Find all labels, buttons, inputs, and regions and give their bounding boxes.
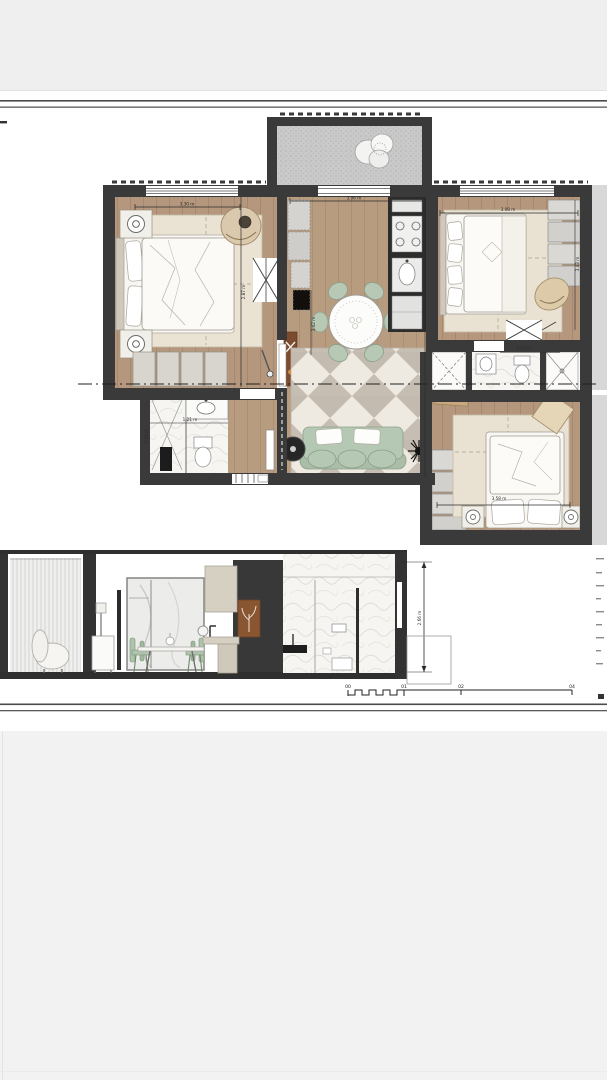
ceiling-fan-symbol-1 — [253, 258, 279, 302]
toilet-bowl — [195, 447, 211, 467]
bedroom-1-door-leaf — [279, 344, 286, 386]
section-shelf-strip — [117, 590, 121, 670]
dim-bedroom3-width: 3.58 m — [492, 496, 507, 501]
bedroom-2 — [440, 200, 580, 340]
section-artwork — [238, 600, 260, 637]
section-shower-glass — [356, 588, 359, 674]
shower-mat — [160, 447, 172, 471]
level-mark — [0, 121, 7, 123]
exterior-strip-upper — [592, 185, 607, 390]
sofa — [300, 427, 406, 469]
bed-2-headboard — [440, 213, 446, 315]
dim-bathroom2-width: 1.57 m — [517, 346, 532, 351]
dim-bedroom1-width: 3.30 m — [180, 202, 195, 207]
toilet-tank — [194, 437, 212, 448]
scale-label-0: 00 — [345, 684, 351, 690]
dim-bathroom1-depth: 1.51 m — [144, 429, 149, 444]
nightstand-bedroom-3-right — [562, 506, 580, 528]
dim-bedroom1-depth: 2.87 m — [241, 285, 246, 300]
section-bedroom — [10, 558, 81, 673]
kitchen — [388, 197, 426, 332]
scale-label-2: 02 — [458, 684, 464, 690]
nightstand-lamp-top — [120, 210, 152, 238]
bottom-gutter — [0, 731, 607, 1080]
section-vanity — [283, 645, 307, 653]
scale-label-3: 04 — [569, 684, 575, 690]
dim-section-height: 2.66 m — [417, 611, 422, 626]
exterior-strip-lower — [592, 395, 607, 545]
dim-living-width: 3.96 m — [347, 196, 362, 201]
dim-bedroom2-depth: 3.43 m — [575, 257, 580, 272]
section-bathroom — [283, 554, 395, 674]
entrance-threshold — [232, 474, 268, 484]
nightstand-bedroom-3-left — [462, 506, 484, 528]
scale-label-1: 01 — [401, 684, 407, 690]
bed-1-duvet — [142, 238, 234, 330]
document-viewer: 3.30 m 2.87 m 3.96 m 3.42 m 3.08 m 3.43 … — [0, 0, 607, 1080]
bed-1-headboard — [116, 238, 124, 330]
top-gutter — [0, 0, 607, 91]
dim-living-depth: 3.42 m — [311, 317, 316, 332]
floorplan-sheet: 3.30 m 2.87 m 3.96 m 3.42 m 3.08 m 3.43 … — [0, 0, 607, 1080]
bathroom-door-leaf — [266, 430, 274, 470]
dim-bedroom2-width: 3.08 m — [501, 207, 516, 212]
balcony — [267, 114, 432, 192]
dim-bathroom1-width: 1.21 m — [183, 417, 198, 422]
